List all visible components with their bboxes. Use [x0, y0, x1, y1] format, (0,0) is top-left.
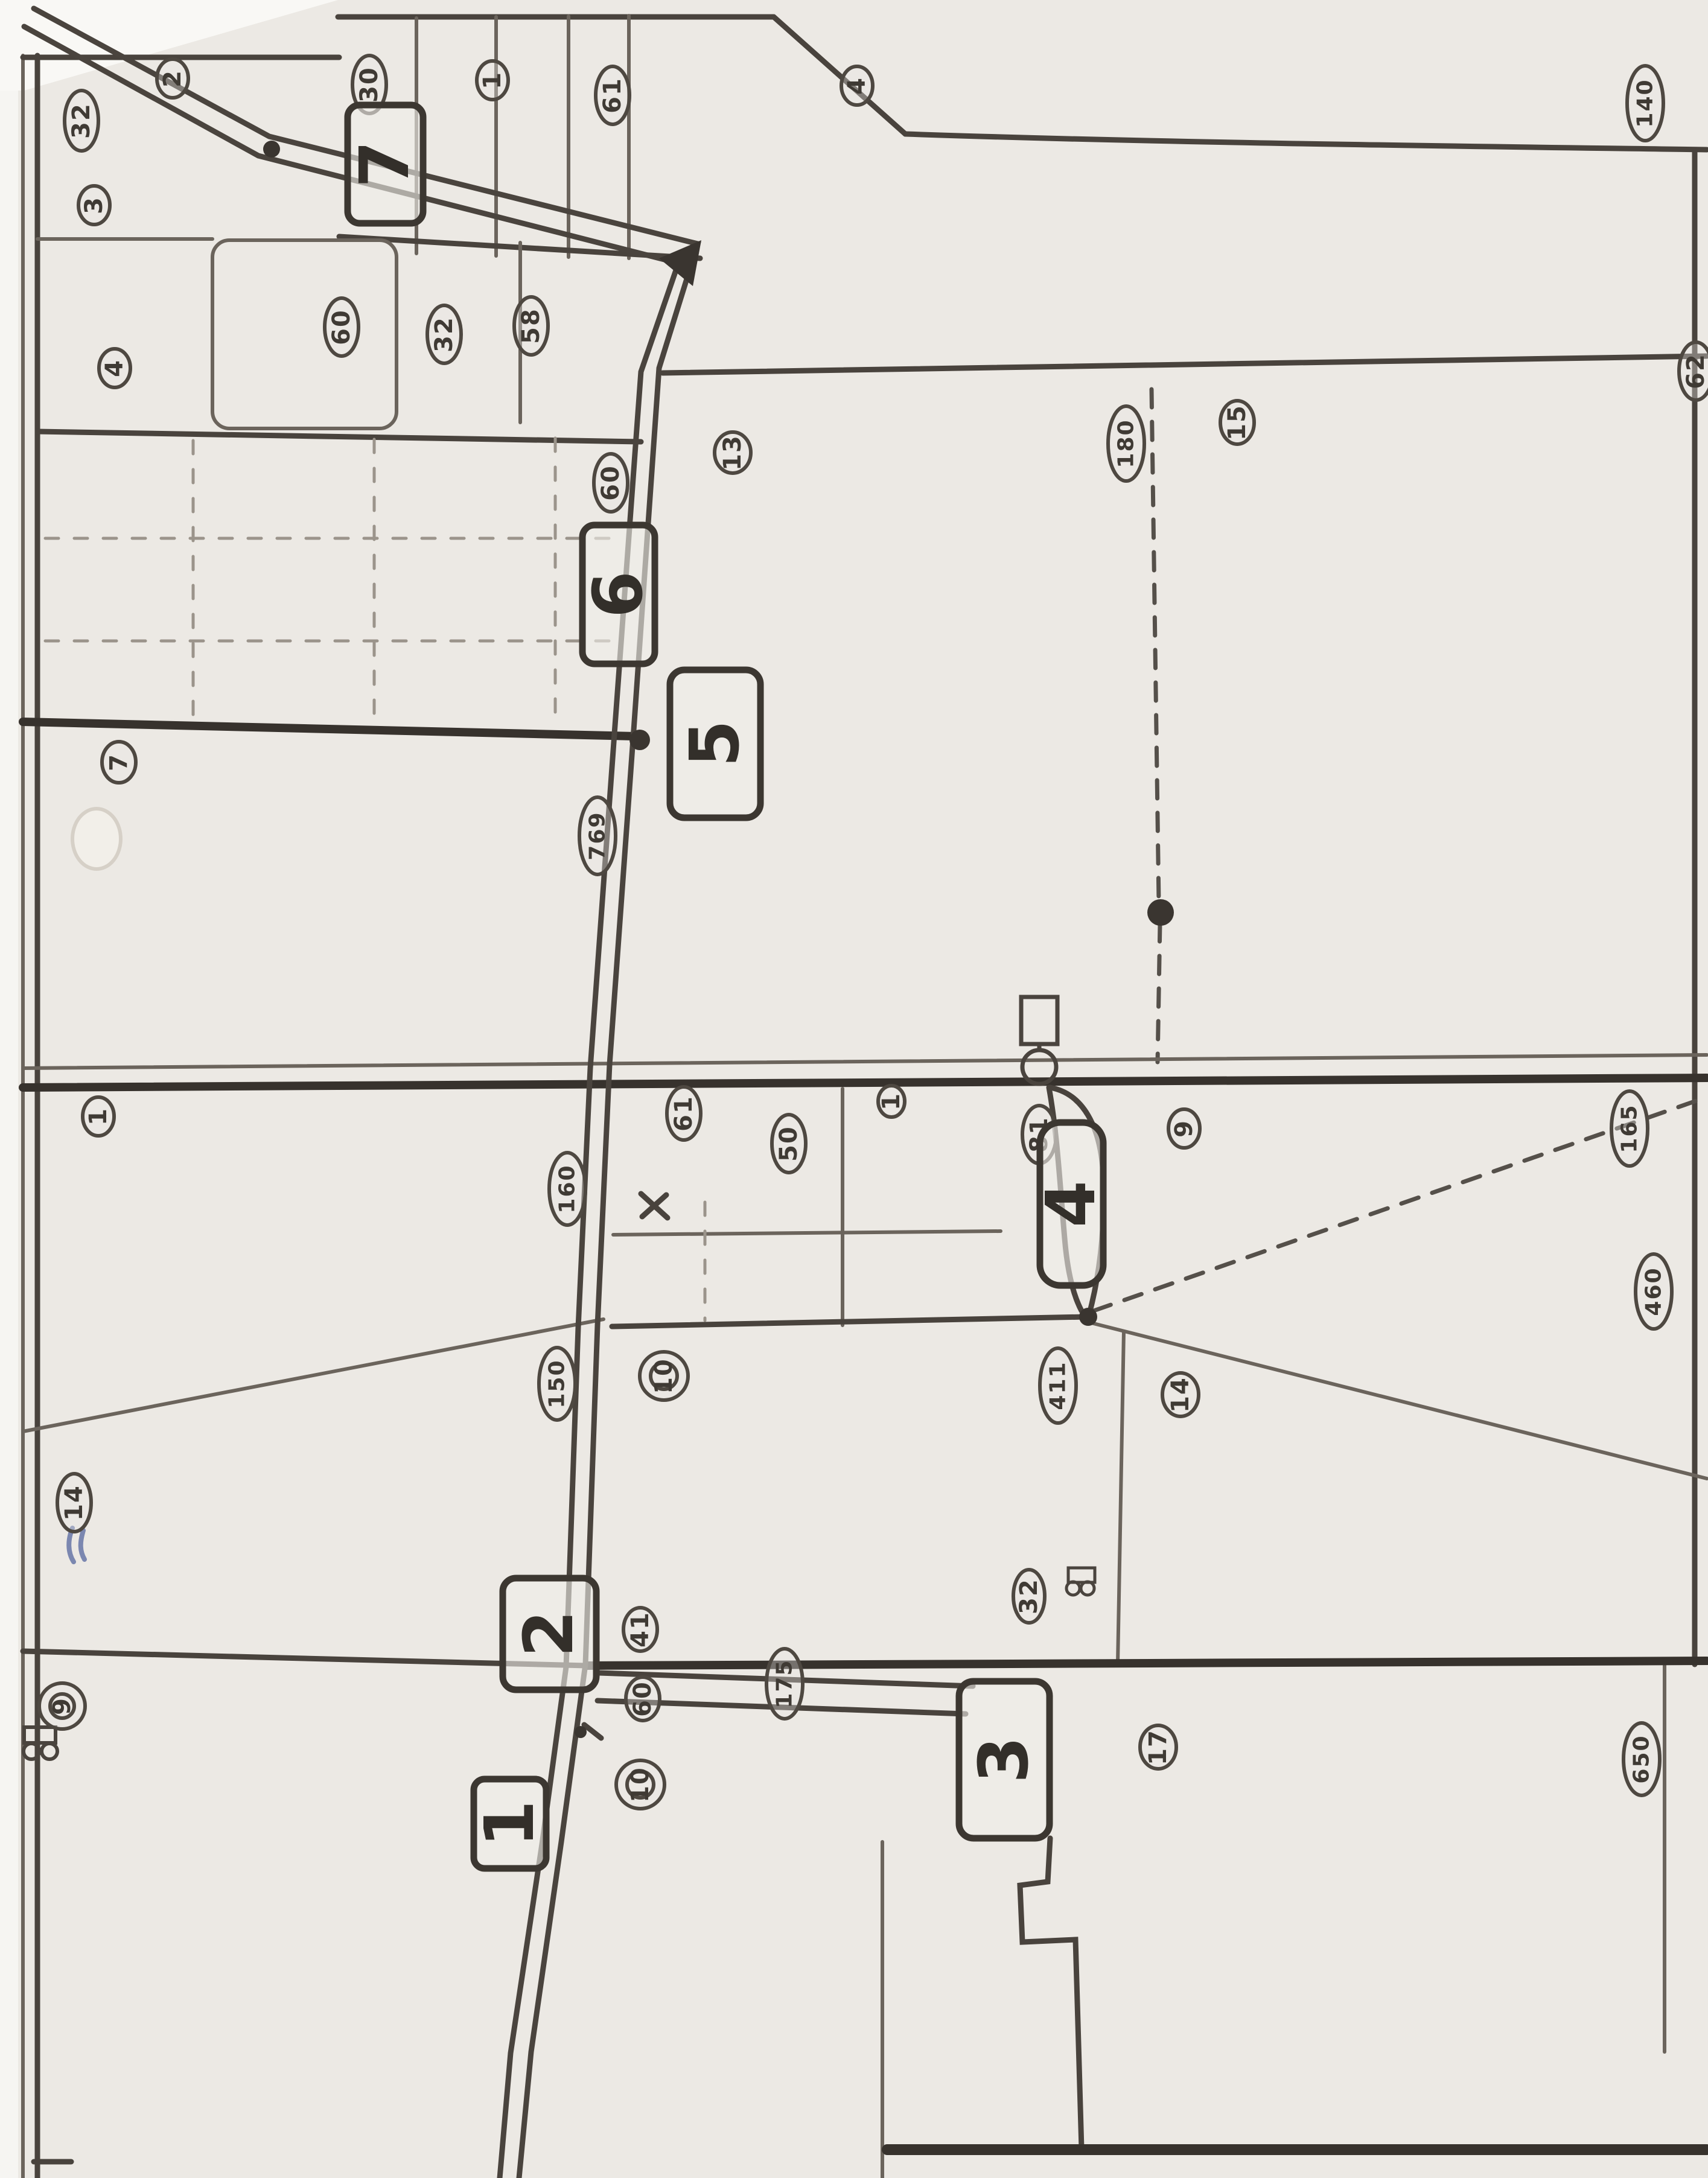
scan-margin-left: [0, 0, 18, 2178]
svg-text:14: 14: [60, 1485, 88, 1521]
svg-text:7: 7: [105, 753, 133, 771]
parcel-oval: 1: [878, 1086, 905, 1117]
parcel-oval: 175: [766, 1649, 803, 1719]
windmill-icon: [24, 1727, 57, 1759]
parcel-oval: 10: [640, 1352, 688, 1400]
parcel-oval: 62: [1679, 342, 1708, 400]
parcel-oval: 10: [616, 1760, 664, 1809]
svg-text:10: 10: [650, 1358, 678, 1394]
faded-stamp-circle: [72, 809, 121, 869]
svg-text:7: 7: [346, 141, 424, 188]
parcel-oval: 4: [99, 349, 130, 387]
junction-dot: [575, 1726, 587, 1738]
parcel-oval: 460: [1636, 1254, 1672, 1329]
svg-text:17: 17: [1144, 1729, 1172, 1765]
svg-text:3: 3: [965, 1736, 1044, 1783]
svg-text:1: 1: [479, 71, 506, 89]
parcel-oval: 411: [1040, 1348, 1076, 1423]
parcel-oval: 1: [477, 61, 508, 100]
survey-point-dot: [1147, 899, 1174, 926]
svg-text:165: 165: [1617, 1104, 1642, 1153]
svg-text:62: 62: [1682, 353, 1708, 389]
svg-text:160: 160: [555, 1164, 580, 1213]
junction-dot: [1079, 1308, 1097, 1326]
svg-text:4: 4: [101, 359, 129, 377]
parcel-oval: 60: [626, 1677, 660, 1721]
pump-icon: [1021, 997, 1057, 1084]
svg-text:14: 14: [1167, 1377, 1194, 1413]
svg-text:3: 3: [80, 196, 108, 214]
parcel-oval: 17: [1140, 1725, 1176, 1769]
map-canvas: 32 2 3 30 1 61 4 140 62 60 32 58 4 60 13…: [0, 0, 1708, 2178]
parcel-oval: 58: [514, 297, 548, 355]
svg-text:180: 180: [1114, 419, 1139, 468]
svg-text:9: 9: [1170, 1119, 1198, 1138]
svg-text:1: 1: [878, 1092, 905, 1110]
station-box-6: 6: [579, 525, 658, 664]
svg-text:13: 13: [719, 435, 747, 471]
svg-text:411: 411: [1046, 1361, 1071, 1410]
svg-text:50: 50: [775, 1126, 803, 1162]
parcel-oval: 14: [57, 1474, 91, 1532]
svg-text:150: 150: [545, 1359, 570, 1408]
svg-text:60: 60: [597, 465, 625, 501]
svg-text:9: 9: [48, 1697, 76, 1715]
svg-text:140: 140: [1633, 78, 1658, 127]
svg-text:61: 61: [670, 1095, 698, 1132]
parcel-oval: 150: [539, 1348, 575, 1420]
svg-text:61: 61: [599, 77, 626, 113]
parcel-oval: 61: [596, 66, 629, 124]
parcel-oval: 32: [65, 91, 98, 151]
parcel-oval: 9: [39, 1683, 85, 1729]
station-box-3: 3: [959, 1681, 1050, 1838]
parcel-oval: 50: [772, 1115, 806, 1173]
parcel-lines: [23, 16, 1707, 2178]
svg-text:650: 650: [1630, 1734, 1654, 1783]
parcel-oval: 60: [594, 454, 628, 512]
parcel-oval: 15: [1220, 401, 1254, 444]
svg-text:60: 60: [629, 1681, 657, 1717]
parcel-oval: 1: [83, 1097, 114, 1136]
svg-text:15: 15: [1223, 404, 1251, 441]
parcel-oval: 41: [623, 1608, 657, 1651]
svg-text:175: 175: [773, 1659, 797, 1708]
junction-dot: [263, 141, 280, 158]
parcel-oval: 140: [1627, 66, 1663, 141]
station-box-1: 1: [471, 1779, 549, 1868]
svg-text:1: 1: [84, 1107, 112, 1126]
svg-text:6: 6: [579, 571, 658, 618]
parcel-oval: 769: [579, 797, 616, 874]
parcel-oval: 32: [427, 305, 461, 363]
svg-text:30: 30: [355, 66, 383, 103]
well-icon: [1066, 1568, 1095, 1595]
station-box-4: 4: [1032, 1122, 1111, 1285]
svg-text:32: 32: [430, 316, 458, 352]
parcel-oval: 2: [157, 59, 188, 98]
station-box-7: 7: [346, 105, 424, 223]
parcel-oval: 9: [1168, 1109, 1200, 1148]
svg-text:769: 769: [585, 811, 610, 860]
parcel-oval: 13: [715, 432, 751, 473]
road: [24, 8, 701, 2178]
svg-text:2: 2: [510, 1610, 588, 1657]
parcel-oval: 650: [1624, 1723, 1660, 1795]
svg-text:4: 4: [843, 77, 871, 95]
parcel-oval: 60: [325, 298, 358, 356]
svg-text:460: 460: [1642, 1267, 1666, 1316]
svg-text:32: 32: [1015, 1578, 1043, 1614]
parcel-oval: 14: [1162, 1373, 1199, 1416]
parcel-oval: 61: [667, 1087, 701, 1140]
svg-text:2: 2: [159, 69, 186, 88]
parcel-oval: 4: [841, 66, 873, 105]
map-border: [23, 17, 1707, 2178]
svg-text:10: 10: [626, 1766, 654, 1803]
road-junction-fill: [659, 240, 701, 286]
scanned-plat-map: 32 2 3 30 1 61 4 140 62 60 32 58 4 60 13…: [0, 0, 1708, 2178]
junction-dot: [629, 730, 650, 750]
station-box-2: 2: [503, 1578, 596, 1690]
svg-text:32: 32: [68, 103, 95, 139]
parcel-oval: 165: [1611, 1091, 1648, 1166]
parcel-oval: 3: [78, 186, 110, 224]
svg-text:5: 5: [676, 720, 754, 767]
svg-text:4: 4: [1032, 1180, 1111, 1228]
parcel-oval: 180: [1108, 406, 1144, 481]
parcel-oval: 32: [1013, 1570, 1045, 1623]
svg-text:58: 58: [517, 308, 545, 344]
svg-text:1: 1: [471, 1800, 549, 1847]
parcel-oval: 7: [102, 742, 136, 783]
station-box-5: 5: [670, 670, 760, 818]
svg-text:41: 41: [626, 1611, 654, 1648]
parcel-oval: 160: [549, 1153, 585, 1225]
svg-text:60: 60: [328, 309, 355, 345]
